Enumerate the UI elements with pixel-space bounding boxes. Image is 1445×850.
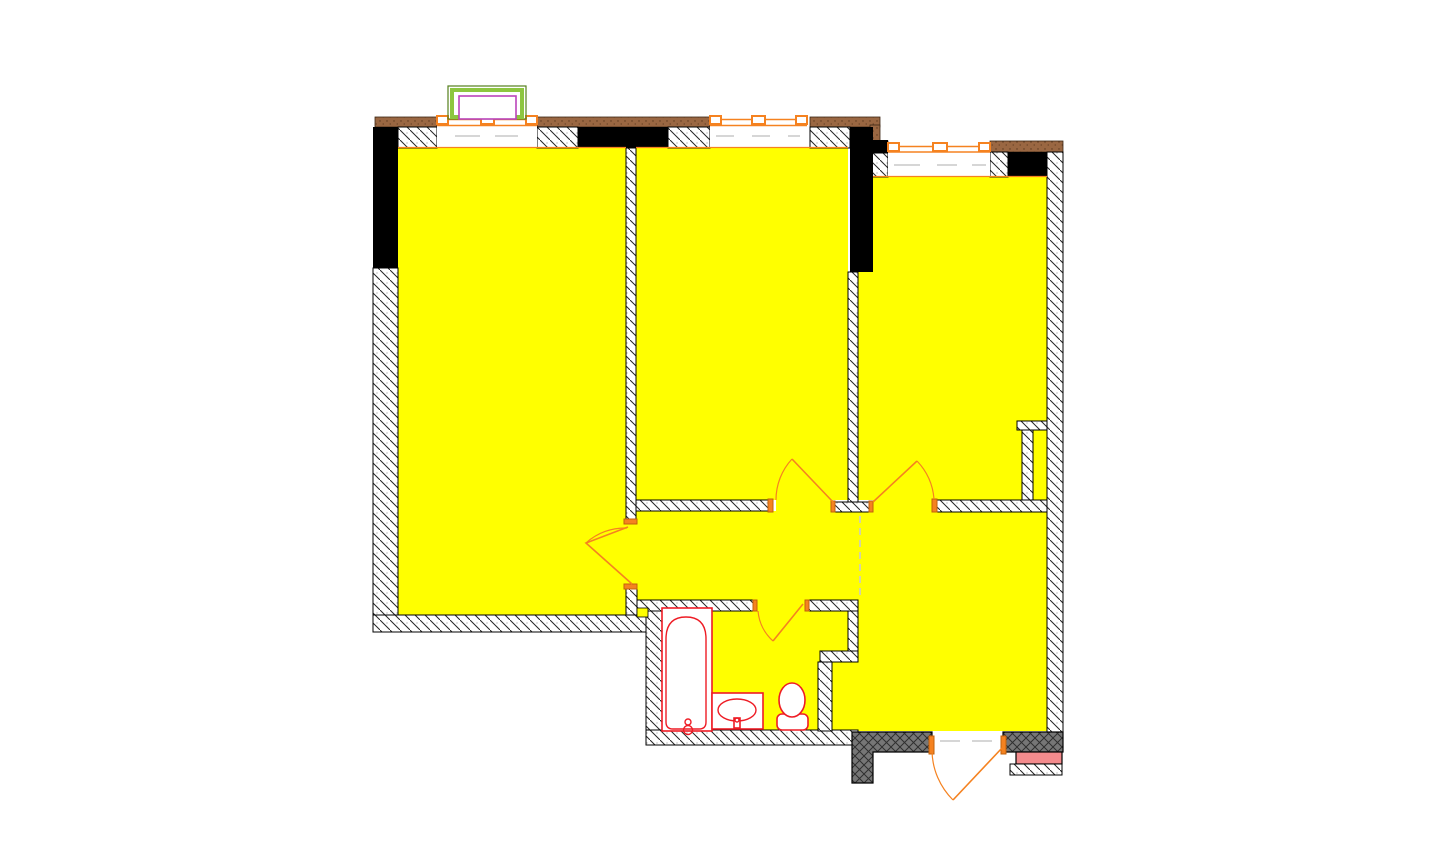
window-mullion [437, 116, 448, 124]
wall-segment [373, 615, 663, 632]
wall-segment [810, 127, 850, 148]
floor-plan-page [0, 0, 1445, 850]
wall-segment [1022, 430, 1033, 500]
doorway-left-floor [624, 524, 638, 586]
floor-plan-canvas [0, 0, 1445, 850]
wall-segment [373, 268, 398, 632]
door-jamb-cap [753, 600, 757, 611]
wall-segment [1017, 421, 1047, 430]
wall-segment [990, 152, 1008, 177]
doorway-middle-floor [776, 500, 833, 512]
wall-segment [1008, 152, 1047, 177]
door-jamb-cap [768, 499, 773, 512]
wall-segment [835, 502, 873, 512]
window-right [888, 143, 990, 176]
corridor-floor [636, 511, 848, 611]
room-right-floor [858, 176, 1047, 500]
door-jamb-cap [869, 501, 873, 512]
facade-band [810, 117, 880, 127]
door-jamb-cap [831, 501, 835, 512]
bathtub-surround [662, 608, 712, 731]
window-mullion [710, 116, 721, 124]
toilet-bowl [779, 683, 805, 717]
wall-segment [626, 586, 637, 615]
entry-and-landing [852, 732, 1063, 800]
door-jamb-cap [624, 584, 637, 589]
room-middle-floor [636, 147, 848, 500]
wall-segment [578, 127, 668, 148]
facade-band [537, 117, 710, 127]
window-mullion [796, 116, 807, 124]
stair-landing-block [852, 732, 932, 783]
balcony-marker-magenta-frame [459, 96, 516, 119]
door-swing-arc [932, 751, 953, 800]
wall-segment [646, 611, 663, 745]
door-jamb-cap [624, 519, 637, 524]
bathtub [662, 608, 712, 735]
window-mullion [979, 143, 990, 151]
door-leaf [953, 748, 1002, 800]
washbasin [712, 693, 763, 729]
porch-wall-segment [1010, 764, 1062, 775]
window-left [437, 116, 537, 147]
wall-segment [860, 140, 888, 153]
wall-segment [626, 148, 636, 524]
wall-segment [1047, 152, 1063, 732]
facade-band [990, 141, 1063, 152]
wall-segment [936, 500, 1047, 512]
wall-notch [637, 608, 648, 617]
stair-landing-block [1003, 732, 1063, 752]
wall-segment [805, 600, 858, 611]
window-middle [710, 116, 807, 147]
wall-segment [636, 500, 772, 511]
toilet [777, 683, 808, 730]
wall-segment [646, 730, 858, 745]
door-jamb-cap [932, 499, 937, 512]
wall-segment [373, 127, 398, 268]
door-jamb-cap [805, 600, 809, 611]
wall-segment [848, 611, 858, 651]
wall-segment [818, 662, 832, 731]
facade-band [375, 117, 437, 127]
window-mullion [933, 143, 947, 151]
window-mullion [526, 116, 537, 124]
window-mullion [752, 116, 765, 124]
doorway-right-floor [873, 500, 936, 512]
room-left-floor [397, 147, 626, 615]
wall-segment [668, 127, 710, 148]
wall-segment [820, 651, 858, 662]
room-floors [397, 147, 1047, 731]
porch-step [1016, 752, 1062, 764]
door-jamb-cap [1001, 736, 1006, 754]
wall-segment [848, 272, 858, 502]
door-entry [929, 736, 1006, 800]
window-mullion [888, 143, 899, 151]
wall-segment [537, 127, 578, 148]
wall-segment [398, 127, 437, 148]
balcony-frame-marker [448, 86, 526, 119]
